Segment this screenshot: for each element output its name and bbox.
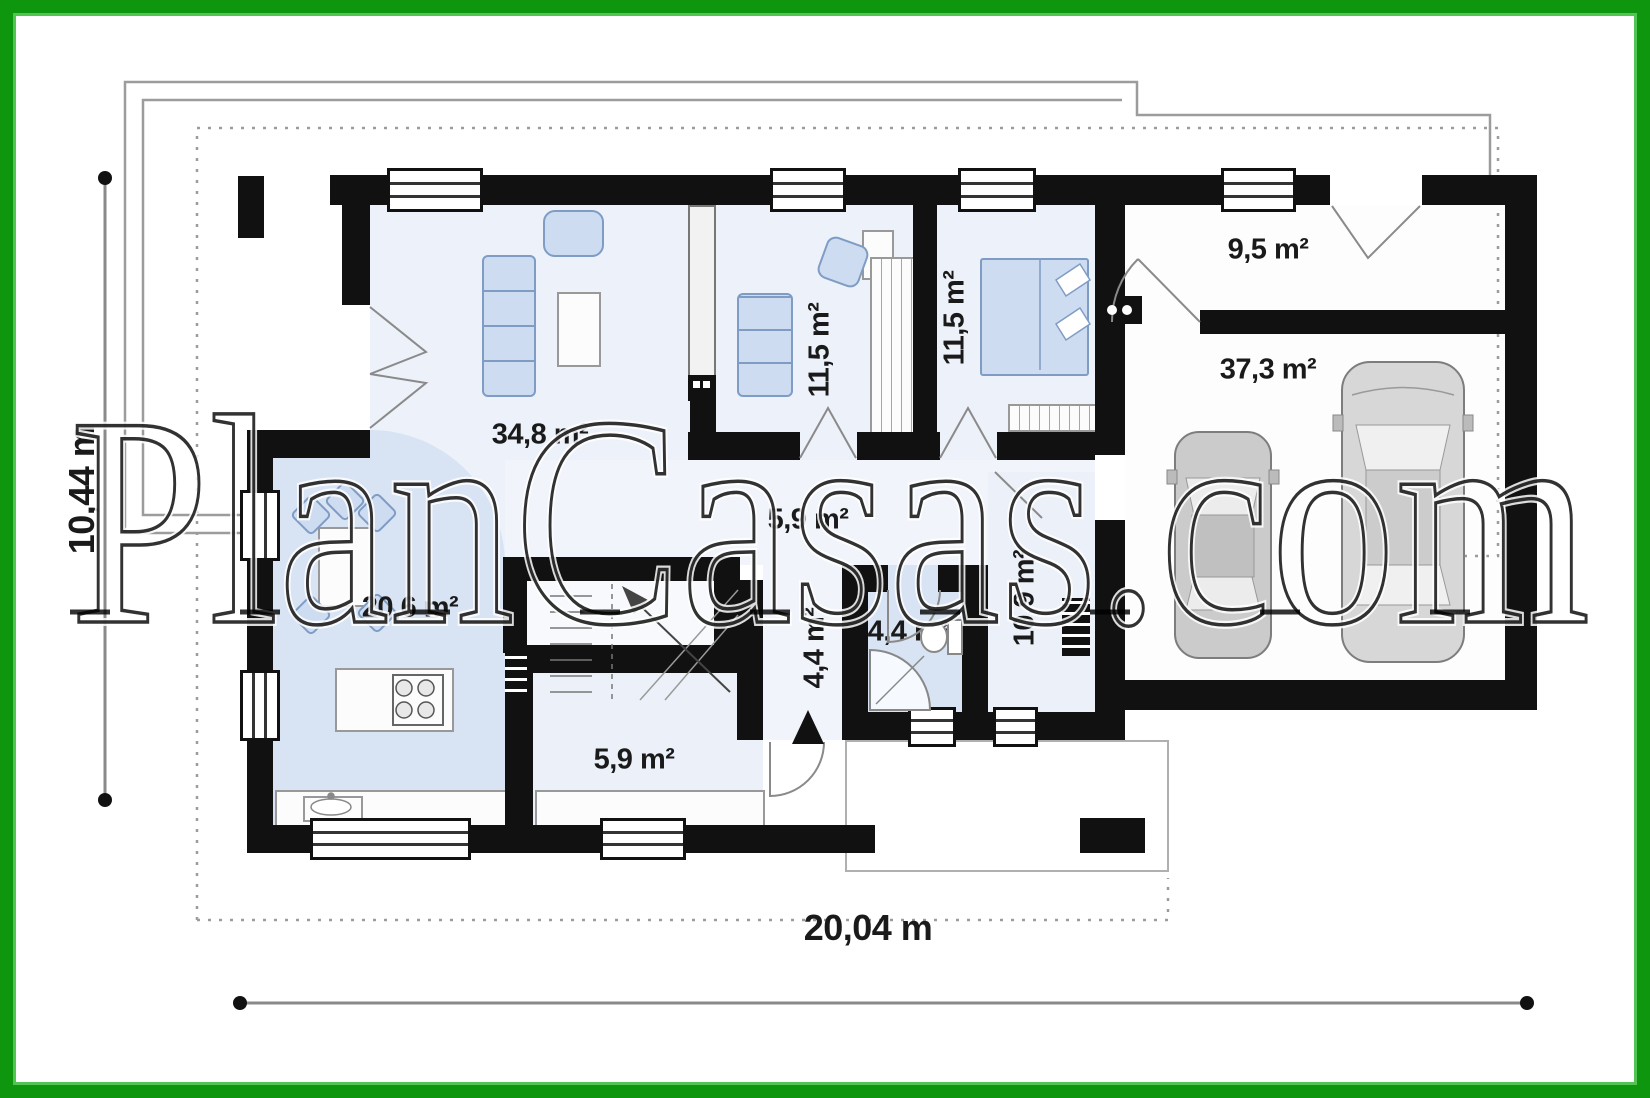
wall (247, 825, 310, 853)
window (1221, 168, 1296, 212)
porch-corner-block (1080, 818, 1145, 853)
room-label-vestibule: 9,5 m² (1228, 234, 1309, 267)
room-label-entry: 4,4 m² (799, 608, 832, 689)
dimension-endpoint (233, 996, 247, 1010)
wall (938, 565, 962, 592)
boiler (1062, 598, 1090, 656)
wall (1095, 520, 1125, 740)
window (387, 168, 483, 212)
room-label-utility: 10,9 m² (1009, 550, 1042, 646)
window (908, 707, 956, 747)
wall-vestibule-garage (1200, 310, 1505, 334)
armchair (543, 210, 604, 257)
room-label-bedroom: 11,5 m² (939, 271, 972, 366)
wall (503, 557, 740, 581)
window (600, 818, 686, 860)
wall (690, 399, 716, 432)
window (958, 168, 1036, 212)
room-label-living: 34,8 m² (492, 419, 588, 452)
room-label-study: 11,5 m² (804, 303, 837, 398)
window (240, 670, 280, 741)
dimension-endpoint (98, 171, 112, 185)
wall (1032, 712, 1125, 740)
room-label-hallway: 5,9 m² (768, 504, 849, 537)
cooktop (392, 674, 444, 726)
dimension-label-height: 10,44 m (61, 426, 103, 555)
french-door-opening (342, 305, 370, 430)
dimension-endpoint (98, 793, 112, 807)
wall (1125, 680, 1537, 710)
wall (962, 565, 988, 740)
window (310, 818, 471, 860)
room-label-garage: 37,3 m² (1220, 354, 1316, 387)
wall (247, 555, 273, 670)
wall (913, 203, 937, 432)
window (770, 168, 846, 212)
dimension-label-width: 20,04 m (804, 907, 933, 949)
room-label-bathroom: 4,4 m² (868, 616, 949, 649)
fireplace-media-wall (688, 205, 716, 377)
wall (737, 580, 763, 740)
bench-dresser (1008, 404, 1102, 432)
tv-unit (688, 375, 716, 401)
garage-entry-door-opening (1330, 175, 1422, 205)
dimension-endpoint (1520, 996, 1534, 1010)
floor-plan-image: 34,8 m² 11,5 m² 11,5 m² 9,5 m² 37,3 m² 2… (0, 0, 1650, 1098)
kitchen-curve-patch (370, 430, 505, 565)
wall (503, 557, 527, 653)
wall (533, 645, 763, 673)
wall (688, 432, 800, 460)
sofa (737, 293, 793, 397)
wardrobe (870, 257, 917, 436)
window (240, 490, 280, 561)
wall (247, 430, 370, 458)
chimney-block (238, 176, 264, 238)
radiator (505, 652, 527, 700)
wall (997, 432, 1095, 460)
bed (980, 258, 1089, 376)
window (993, 707, 1038, 747)
wall (247, 458, 273, 490)
wall (842, 565, 868, 740)
wall (868, 565, 888, 592)
sofa (482, 255, 536, 397)
room-label-kitchen: 20,6 m² (362, 592, 458, 625)
coffee-table (557, 292, 601, 367)
wall (342, 175, 370, 305)
wall (680, 825, 875, 853)
wall (1505, 175, 1537, 710)
door-threshold-marker (1098, 296, 1142, 324)
room-label-storage: 5,9 m² (594, 744, 675, 777)
wall (857, 432, 940, 460)
roof-overhang-dotted-bottom (197, 878, 1168, 920)
